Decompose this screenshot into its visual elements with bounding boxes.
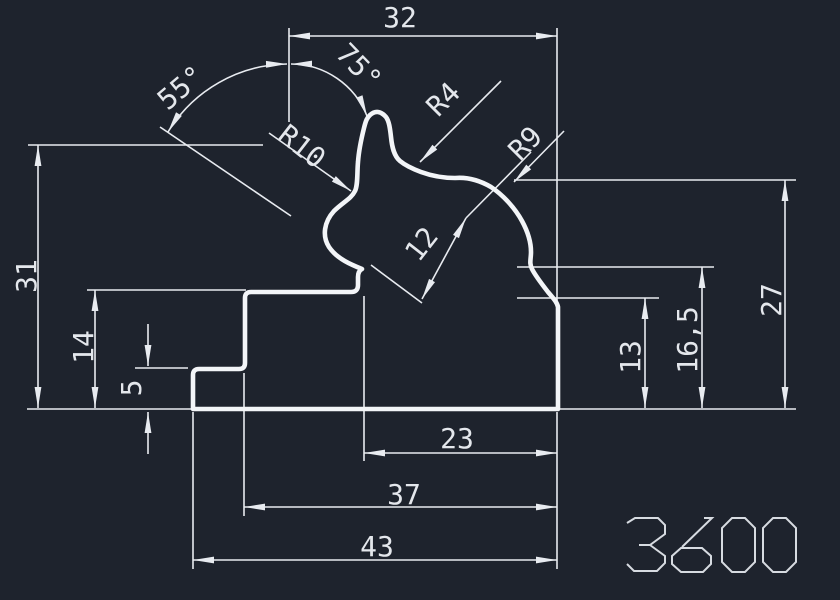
- dim-label-13: 13: [614, 340, 647, 374]
- ext-slant-55: [160, 127, 291, 216]
- glyph-3: [627, 518, 665, 571]
- glyph-6: [672, 518, 712, 572]
- radius-label-r10: R10: [272, 118, 332, 175]
- profile-outline: [193, 112, 558, 409]
- dim-label-12: 12: [398, 221, 445, 268]
- dim-label-32: 32: [383, 1, 417, 34]
- cad-canvas: 32 31 14 5 13 16,5 27 23 37 43 12 55° 75…: [0, 0, 840, 600]
- dim-label-5: 5: [115, 380, 148, 397]
- dim-label-37: 37: [387, 478, 421, 511]
- dim-label-23: 23: [440, 422, 474, 455]
- dim-label-14: 14: [67, 330, 100, 364]
- dim-label-27: 27: [755, 283, 788, 317]
- dim-label-43: 43: [360, 530, 394, 563]
- dimension-labels: 32 31 14 5 13 16,5 27 23 37 43 12 55° 75…: [10, 1, 788, 563]
- glyph-0b: [763, 518, 796, 572]
- angle-label-55: 55°: [151, 59, 211, 117]
- drawing-number-glyphs: [627, 518, 796, 572]
- glyph-0a: [722, 518, 755, 572]
- radius-label-r9: R9: [502, 120, 549, 167]
- ext-12-lower: [371, 265, 422, 303]
- radius-label-r4: R4: [420, 76, 467, 123]
- dim-label-16_5: 16,5: [671, 306, 704, 373]
- dim-label-31: 31: [10, 259, 43, 293]
- angle-label-75: 75°: [329, 37, 388, 96]
